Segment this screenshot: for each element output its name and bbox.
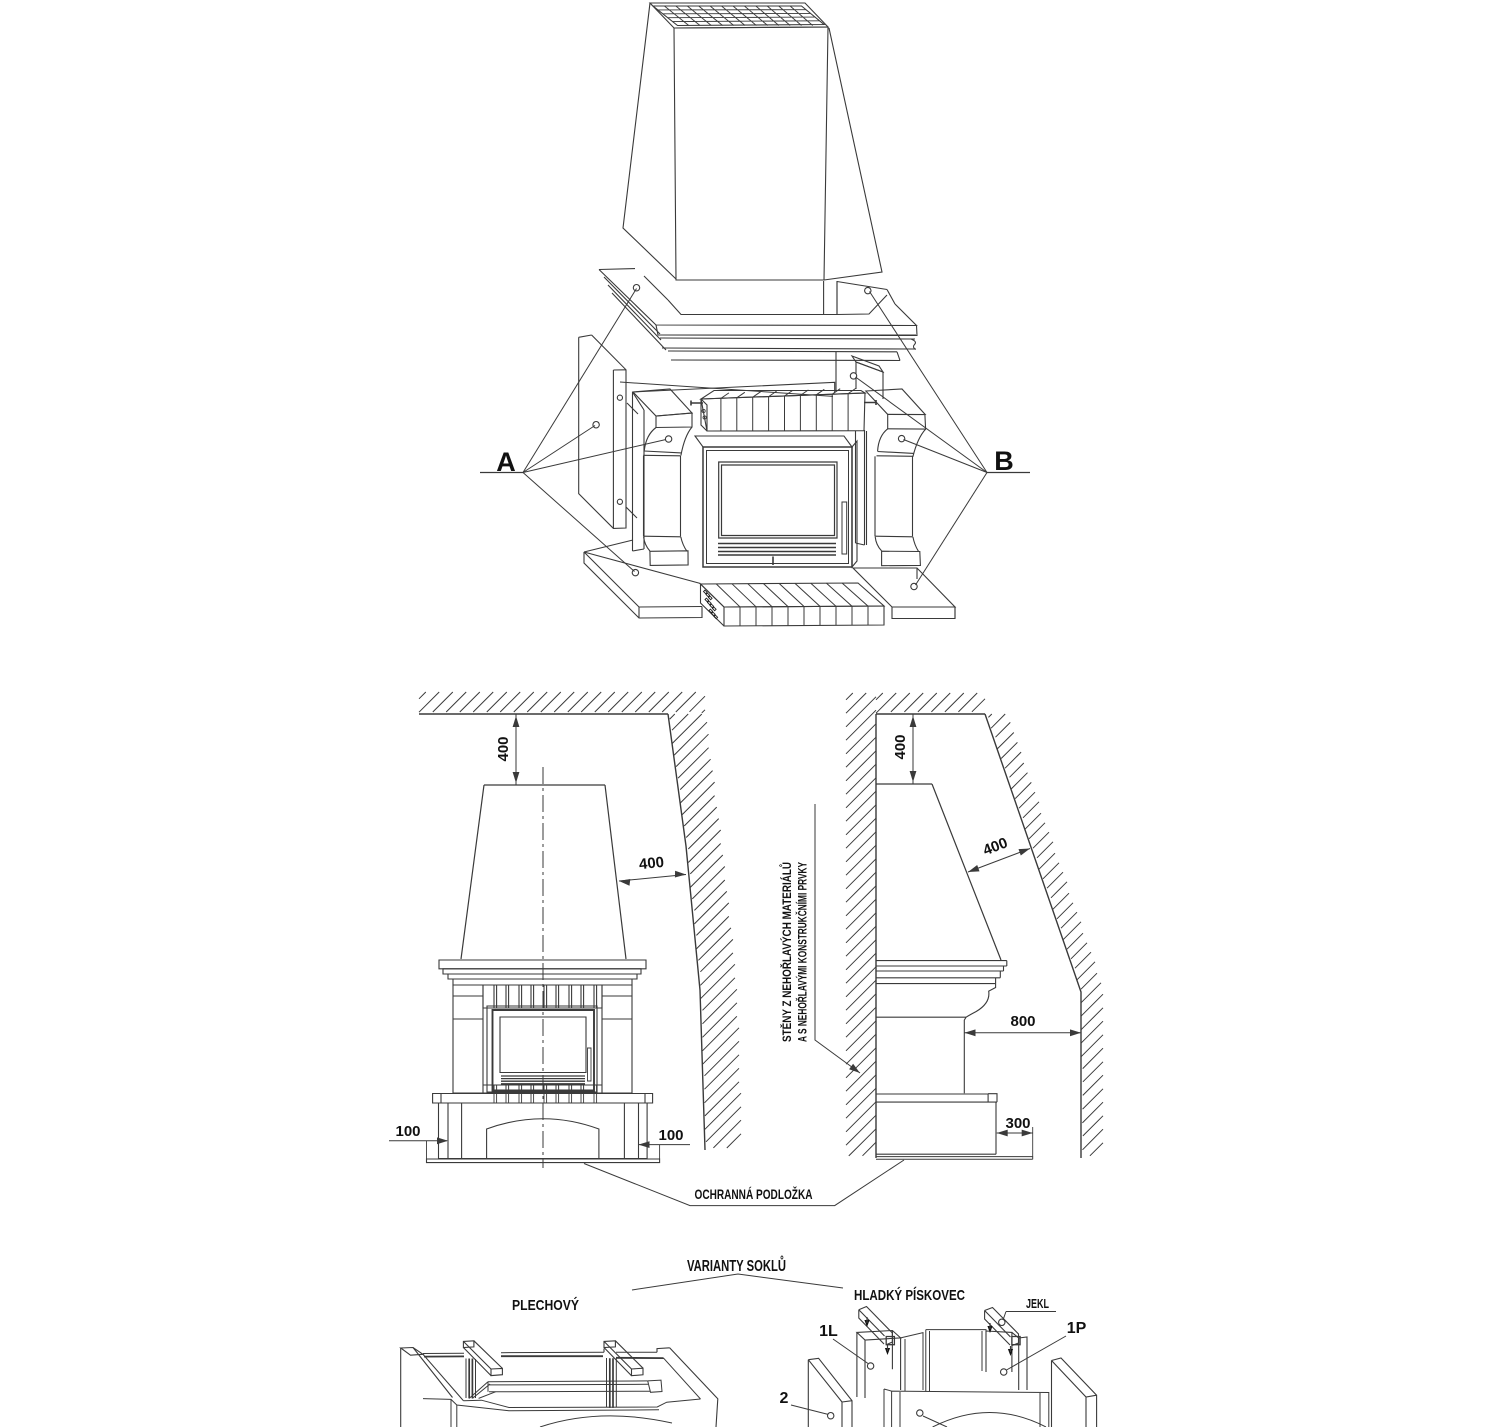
svg-text:1P: 1P — [1067, 1320, 1087, 1337]
svg-text:800: 800 — [1010, 1013, 1035, 1030]
svg-text:OCHRANNÁ PODLOŽKA: OCHRANNÁ PODLOŽKA — [695, 1185, 813, 1202]
svg-text:100: 100 — [395, 1123, 420, 1140]
svg-text:1L: 1L — [819, 1323, 838, 1340]
svg-text:VARIANTY SOKLŮ: VARIANTY SOKLŮ — [687, 1255, 786, 1275]
svg-text:PLECHOVÝ: PLECHOVÝ — [512, 1296, 579, 1314]
svg-text:B: B — [994, 446, 1014, 476]
svg-text:JEKL: JEKL — [1026, 1297, 1049, 1311]
svg-text:400: 400 — [892, 734, 909, 759]
svg-text:2: 2 — [780, 1390, 789, 1407]
svg-text:300: 300 — [1005, 1115, 1030, 1132]
svg-text:400: 400 — [638, 854, 665, 874]
svg-text:HLADKÝ PÍSKOVEC: HLADKÝ PÍSKOVEC — [854, 1286, 965, 1304]
svg-text:A S NEHOŘLAVÝMI KONSTRUKČNÍMI: A S NEHOŘLAVÝMI KONSTRUKČNÍMI PRVKY — [797, 862, 810, 1042]
svg-text:400: 400 — [495, 736, 512, 761]
svg-text:100: 100 — [658, 1127, 683, 1144]
svg-text:STĚNY Z NEHOŘLAVÝCH MATERIÁLŮ: STĚNY Z NEHOŘLAVÝCH MATERIÁLŮ — [780, 862, 794, 1042]
